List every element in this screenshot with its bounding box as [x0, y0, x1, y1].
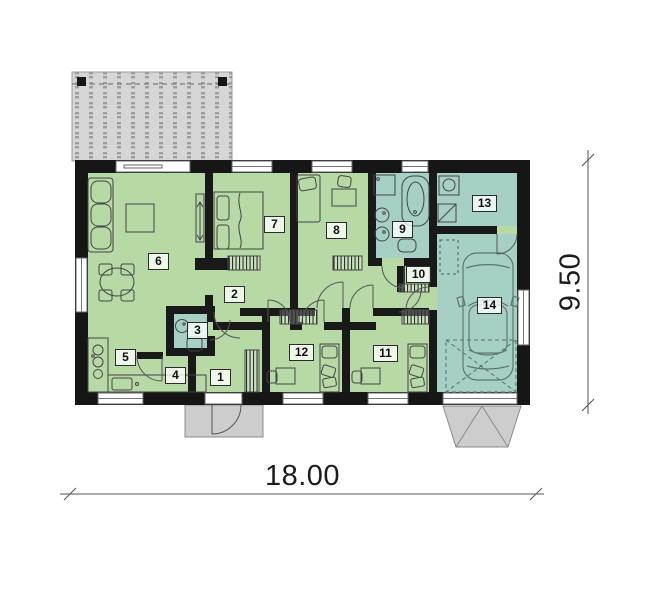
entrance-door-opening — [205, 393, 242, 404]
room-label-8: 8 — [326, 222, 347, 239]
room-label-7: 7 — [264, 216, 285, 233]
wardrobe — [333, 256, 362, 270]
room-label-9: 9 — [392, 221, 413, 238]
terrace-post — [218, 77, 227, 86]
room-label-1: 1 — [210, 369, 231, 386]
room-label-10: 10 — [406, 266, 431, 283]
terrace-post — [77, 77, 86, 86]
room-label-5: 5 — [115, 349, 136, 366]
room-label-14: 14 — [477, 297, 502, 314]
dimension-height-label: 9.50 — [555, 220, 587, 345]
garage-apron — [443, 406, 521, 447]
room-label-3: 3 — [187, 322, 208, 339]
sliding-leaf — [124, 165, 162, 168]
hall-wardrobe — [245, 350, 259, 392]
floor-plan-canvas: 1 2 3 4 5 6 7 8 9 10 11 12 13 14 18.00 9… — [0, 0, 660, 594]
room-label-12: 12 — [289, 344, 314, 361]
room-label-2: 2 — [224, 286, 245, 303]
room-label-6: 6 — [148, 253, 169, 270]
wardrobe — [402, 310, 429, 324]
room-label-4: 4 — [165, 367, 186, 384]
room-label-13: 13 — [472, 195, 497, 212]
wardrobe — [280, 310, 317, 324]
dimension-width-label: 18.00 — [230, 460, 375, 492]
wardrobe — [228, 256, 260, 270]
entrance-porch — [185, 405, 263, 437]
room-label-11: 11 — [373, 345, 398, 362]
terrace — [72, 72, 232, 161]
